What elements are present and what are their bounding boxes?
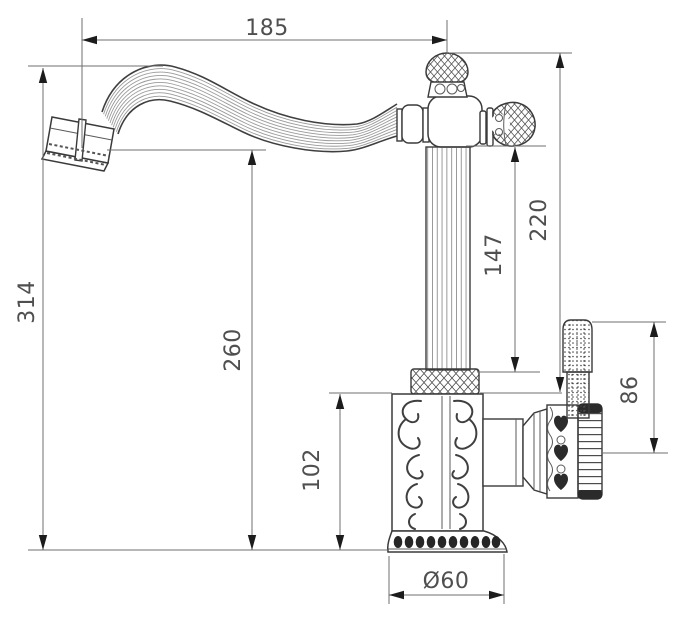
- dim-arrow: [336, 535, 344, 550]
- dim-arrow: [39, 68, 47, 83]
- dim-arrow: [39, 535, 47, 550]
- dim-arrow: [248, 150, 256, 165]
- faucet-technical-drawing: 185 314 260 220 147: [0, 0, 684, 620]
- connection-flange: [397, 105, 429, 143]
- base-flare: [388, 531, 507, 552]
- dim-label-spout-reach: 185: [245, 16, 289, 41]
- dim-side-handle-height: 86: [592, 322, 668, 453]
- dim-label-side-handle-height: 86: [618, 376, 643, 405]
- dim-arrow: [82, 36, 97, 44]
- dim-arrow: [511, 147, 519, 162]
- dim-arrow: [248, 535, 256, 550]
- dim-label-base-diameter: Ø60: [423, 569, 470, 594]
- crown-band: [547, 405, 578, 498]
- ornate-body: [392, 394, 483, 531]
- right-pinecone-handle: [480, 102, 535, 146]
- drawing-svg: 185 314 260 220 147: [0, 0, 684, 620]
- dim-handle-clearance: 147: [466, 146, 546, 372]
- dim-spout-outlet-height: 260: [107, 150, 266, 550]
- side-valve: [483, 320, 602, 499]
- dim-arrow: [556, 377, 564, 392]
- dim-base-diameter: Ø60: [389, 554, 504, 604]
- dim-arrow: [556, 53, 564, 68]
- dim-body-height: 102: [300, 393, 392, 550]
- dim-arrow: [489, 591, 504, 599]
- dim-label-spout-outlet-height: 260: [221, 328, 246, 372]
- knurled-collar: [411, 369, 479, 394]
- valve-arm: [483, 419, 523, 486]
- dim-label-top-height: 220: [527, 198, 552, 242]
- dim-arrow: [389, 591, 404, 599]
- tee-body: [428, 96, 482, 147]
- dim-label-handle-clearance: 147: [482, 233, 507, 277]
- dim-arrow: [336, 394, 344, 409]
- valve-cone: [523, 409, 547, 494]
- spout-tube: [102, 65, 397, 152]
- spout-outlet-head: [42, 117, 114, 171]
- dim-arrow: [650, 438, 658, 453]
- dim-arrow: [650, 322, 658, 337]
- dim-label-body-height: 102: [300, 448, 325, 492]
- dim-arrow: [511, 357, 519, 372]
- dim-label-overall-height: 314: [15, 280, 40, 324]
- dim-arrow: [432, 36, 447, 44]
- riser-column: [426, 147, 470, 370]
- top-finial: [426, 53, 468, 97]
- valve-lever: [563, 320, 592, 418]
